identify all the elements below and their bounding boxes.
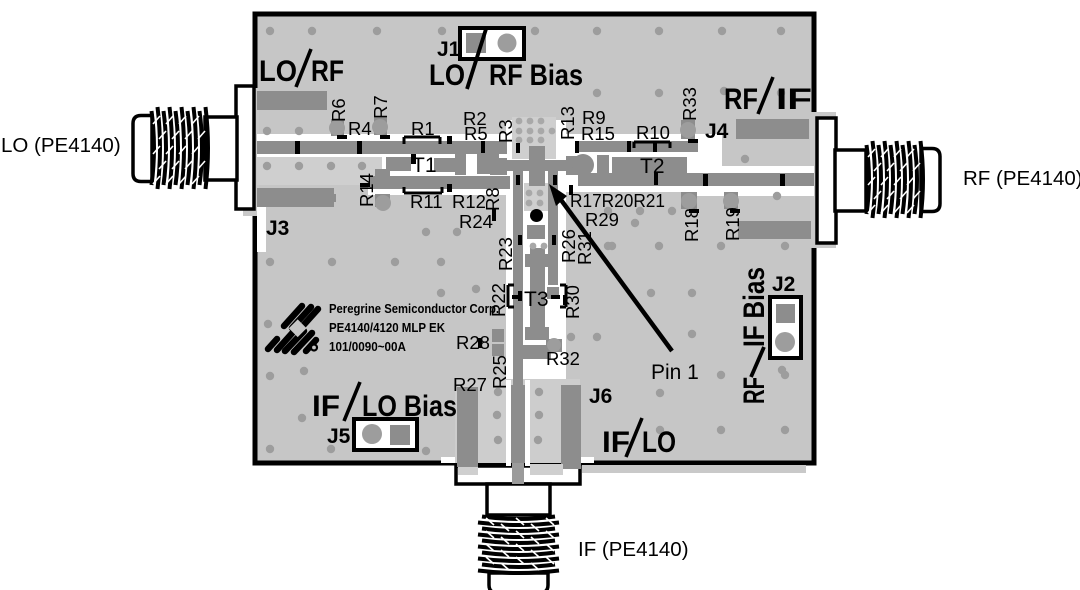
svg-text:R3: R3 xyxy=(495,119,516,143)
svg-text:R17R20R21: R17R20R21 xyxy=(570,190,665,211)
svg-text:LO: LO xyxy=(259,55,297,88)
svg-text:IF: IF xyxy=(312,390,340,423)
svg-text:T2: T2 xyxy=(640,155,665,178)
svg-text:R29: R29 xyxy=(585,209,619,230)
svg-text:R5: R5 xyxy=(464,123,488,144)
svg-text:LO Bias: LO Bias xyxy=(362,390,457,423)
svg-text:R28: R28 xyxy=(456,332,490,353)
svg-text:R18: R18 xyxy=(681,208,702,242)
svg-text:R4: R4 xyxy=(348,118,372,139)
svg-text:IF (PE4140): IF (PE4140) xyxy=(578,538,689,561)
svg-text:R12: R12 xyxy=(452,191,486,212)
svg-text:RF Bias: RF Bias xyxy=(489,59,583,92)
svg-text:R10: R10 xyxy=(636,122,670,143)
svg-text:PE4140/4120 MLP EK: PE4140/4120 MLP EK xyxy=(329,320,446,335)
svg-text:R7: R7 xyxy=(370,95,391,119)
svg-text:LO: LO xyxy=(642,426,676,459)
svg-text:LO (PE4140): LO (PE4140) xyxy=(1,134,121,157)
svg-text:T3: T3 xyxy=(524,288,549,311)
svg-text:R27: R27 xyxy=(453,374,487,395)
svg-text:R31: R31 xyxy=(574,231,595,265)
svg-text:R24: R24 xyxy=(459,211,493,232)
svg-text:101/0090~00A: 101/0090~00A xyxy=(329,340,406,354)
svg-text:J6: J6 xyxy=(589,385,612,408)
svg-text:R14: R14 xyxy=(356,173,377,207)
svg-text:RF (PE4140): RF (PE4140) xyxy=(963,167,1080,190)
svg-text:J3: J3 xyxy=(266,217,289,240)
svg-text:J2: J2 xyxy=(772,273,795,296)
svg-text:RF: RF xyxy=(724,83,758,116)
svg-text:R15: R15 xyxy=(581,123,615,144)
svg-text:LO: LO xyxy=(429,59,465,92)
svg-text:R13: R13 xyxy=(557,106,578,140)
svg-text:Peregrine Semiconductor Corp.: Peregrine Semiconductor Corp. xyxy=(329,302,499,316)
svg-text:R23: R23 xyxy=(495,237,516,271)
svg-text:R6: R6 xyxy=(328,98,349,122)
svg-text:R25: R25 xyxy=(489,355,510,389)
svg-text:RF: RF xyxy=(311,55,344,88)
svg-text:RF: RF xyxy=(738,377,771,404)
svg-text:IF: IF xyxy=(776,83,812,116)
svg-text:J1: J1 xyxy=(437,38,461,61)
svg-text:R8: R8 xyxy=(482,187,503,211)
svg-text:J5: J5 xyxy=(327,425,351,448)
svg-text:IF Bias: IF Bias xyxy=(738,267,771,347)
svg-text:R33: R33 xyxy=(679,87,700,121)
svg-text:Pin 1: Pin 1 xyxy=(651,361,699,384)
svg-text:R32: R32 xyxy=(546,348,580,369)
svg-text:J4: J4 xyxy=(705,120,729,143)
